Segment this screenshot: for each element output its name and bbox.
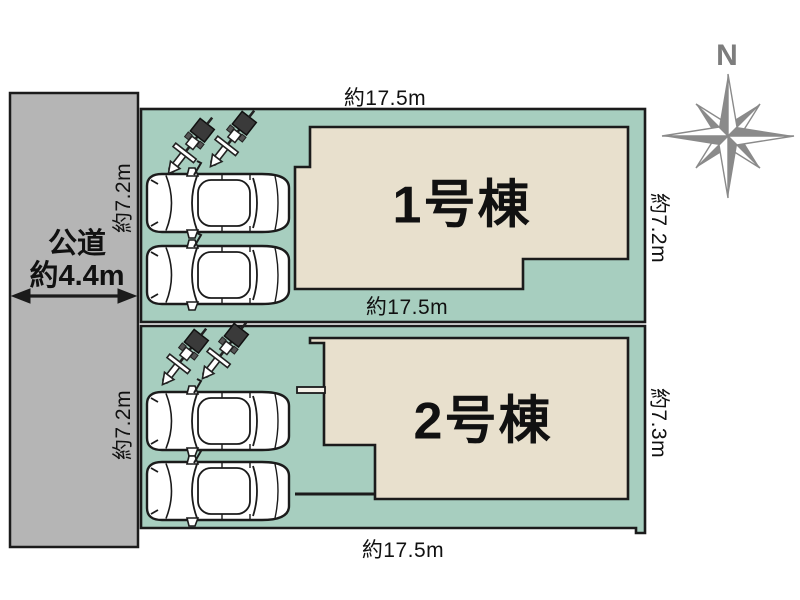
compass-north-label: N xyxy=(716,39,738,73)
compass-rose-icon xyxy=(662,74,794,198)
building-2-porch-tab xyxy=(297,387,325,393)
plot2-right-dimension: 約7.3m xyxy=(645,388,675,458)
site-plan-diagram: N 公道 約4.4m 約17.5m 約7.2m 約7.2m 約17.5m 約7.… xyxy=(0,0,800,600)
plot1-right-dimension: 約7.2m xyxy=(645,193,675,263)
road-label: 公道 約4.4m xyxy=(29,228,124,292)
plot1-left-dimension: 約7.2m xyxy=(107,163,137,233)
road-width: 約4.4m xyxy=(29,260,124,292)
plot2-left-dimension: 約7.2m xyxy=(107,390,137,460)
road-strip xyxy=(10,93,138,547)
plot2-bottom-dimension: 約17.5m xyxy=(362,534,444,564)
plot1-top-dimension: 約17.5m xyxy=(344,82,426,112)
building-1-label: 1号棟 xyxy=(393,163,532,238)
plot1-bottom-dimension: 約17.5m xyxy=(366,291,448,321)
building-2-label: 2号棟 xyxy=(414,379,553,454)
